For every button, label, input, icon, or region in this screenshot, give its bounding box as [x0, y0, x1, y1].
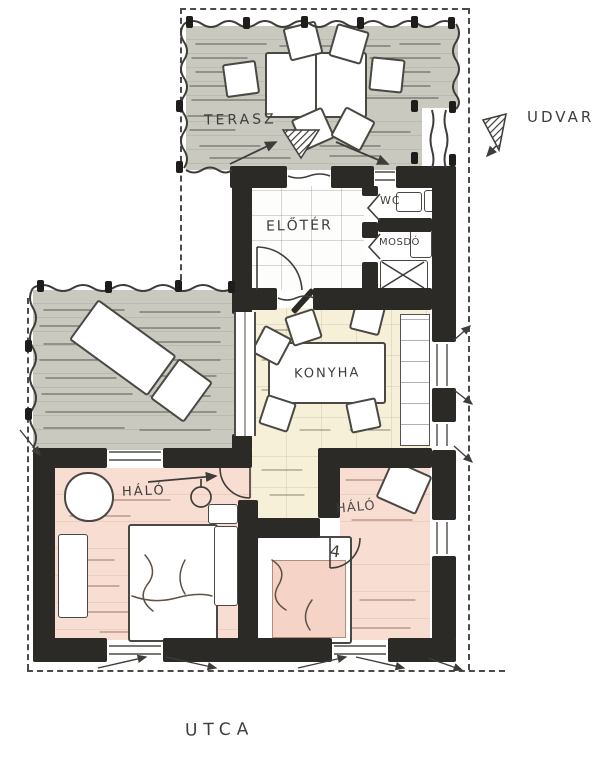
wall-segment	[432, 166, 456, 342]
wardrobe	[58, 534, 88, 618]
wall-segment	[163, 448, 252, 468]
room-eloter	[252, 186, 364, 290]
window	[437, 522, 447, 554]
nightstand	[208, 504, 238, 524]
udvar-arrow-icon	[487, 146, 496, 156]
wall-segment	[232, 166, 252, 302]
property-line-left-lower	[27, 298, 29, 670]
outside-label-utca: UTCA	[185, 719, 255, 740]
wall-segment	[33, 448, 55, 662]
property-line-bottom	[27, 670, 505, 672]
outside-label-udvar: UDVAR	[527, 108, 594, 126]
steps	[431, 110, 448, 168]
chair	[222, 60, 260, 98]
room-label-terasz: TERASZ	[204, 111, 277, 128]
room-label-mosdo: MOSDÓ	[379, 237, 420, 248]
wall-segment	[432, 556, 456, 640]
window	[437, 344, 447, 386]
bed-bench	[214, 526, 238, 606]
property-line-right	[468, 8, 470, 670]
bed-pillow-mark: 4	[329, 541, 344, 562]
property-line-top	[180, 8, 468, 10]
chair	[345, 397, 382, 434]
wall-segment	[252, 518, 320, 538]
room-label-eloter: ELŐTÉR	[266, 217, 333, 234]
wall-segment	[163, 638, 332, 662]
window	[334, 646, 386, 654]
door-threshold	[288, 174, 330, 178]
chair	[368, 56, 405, 93]
room-label-konyha: KONYHA	[294, 365, 361, 381]
property-line-left-upper	[180, 8, 182, 290]
blanket	[272, 560, 346, 638]
wall-segment	[378, 218, 432, 232]
floor-plan-sketch: KONYHA	[0, 0, 606, 768]
room-label-halo-left: HÁLÓ	[122, 483, 166, 500]
window	[375, 172, 395, 180]
wall-segment	[313, 288, 432, 310]
wall-segment	[331, 166, 374, 188]
window	[109, 452, 161, 460]
kitchen-counter	[400, 314, 430, 446]
glass-door	[234, 312, 256, 436]
round-chair	[64, 472, 114, 522]
wall-segment	[332, 448, 432, 468]
wall-segment	[232, 288, 252, 314]
door-swing	[368, 194, 380, 221]
window	[437, 424, 447, 446]
wall-segment	[388, 638, 456, 662]
table-divider	[315, 54, 317, 112]
wall-segment	[432, 450, 456, 520]
room-label-wc: WC	[380, 194, 401, 207]
bed	[128, 524, 218, 642]
udvar-marker-icon	[483, 114, 506, 150]
wall-segment	[362, 222, 378, 238]
wall-segment	[362, 186, 378, 196]
wall-segment	[432, 388, 456, 422]
window	[109, 646, 161, 654]
